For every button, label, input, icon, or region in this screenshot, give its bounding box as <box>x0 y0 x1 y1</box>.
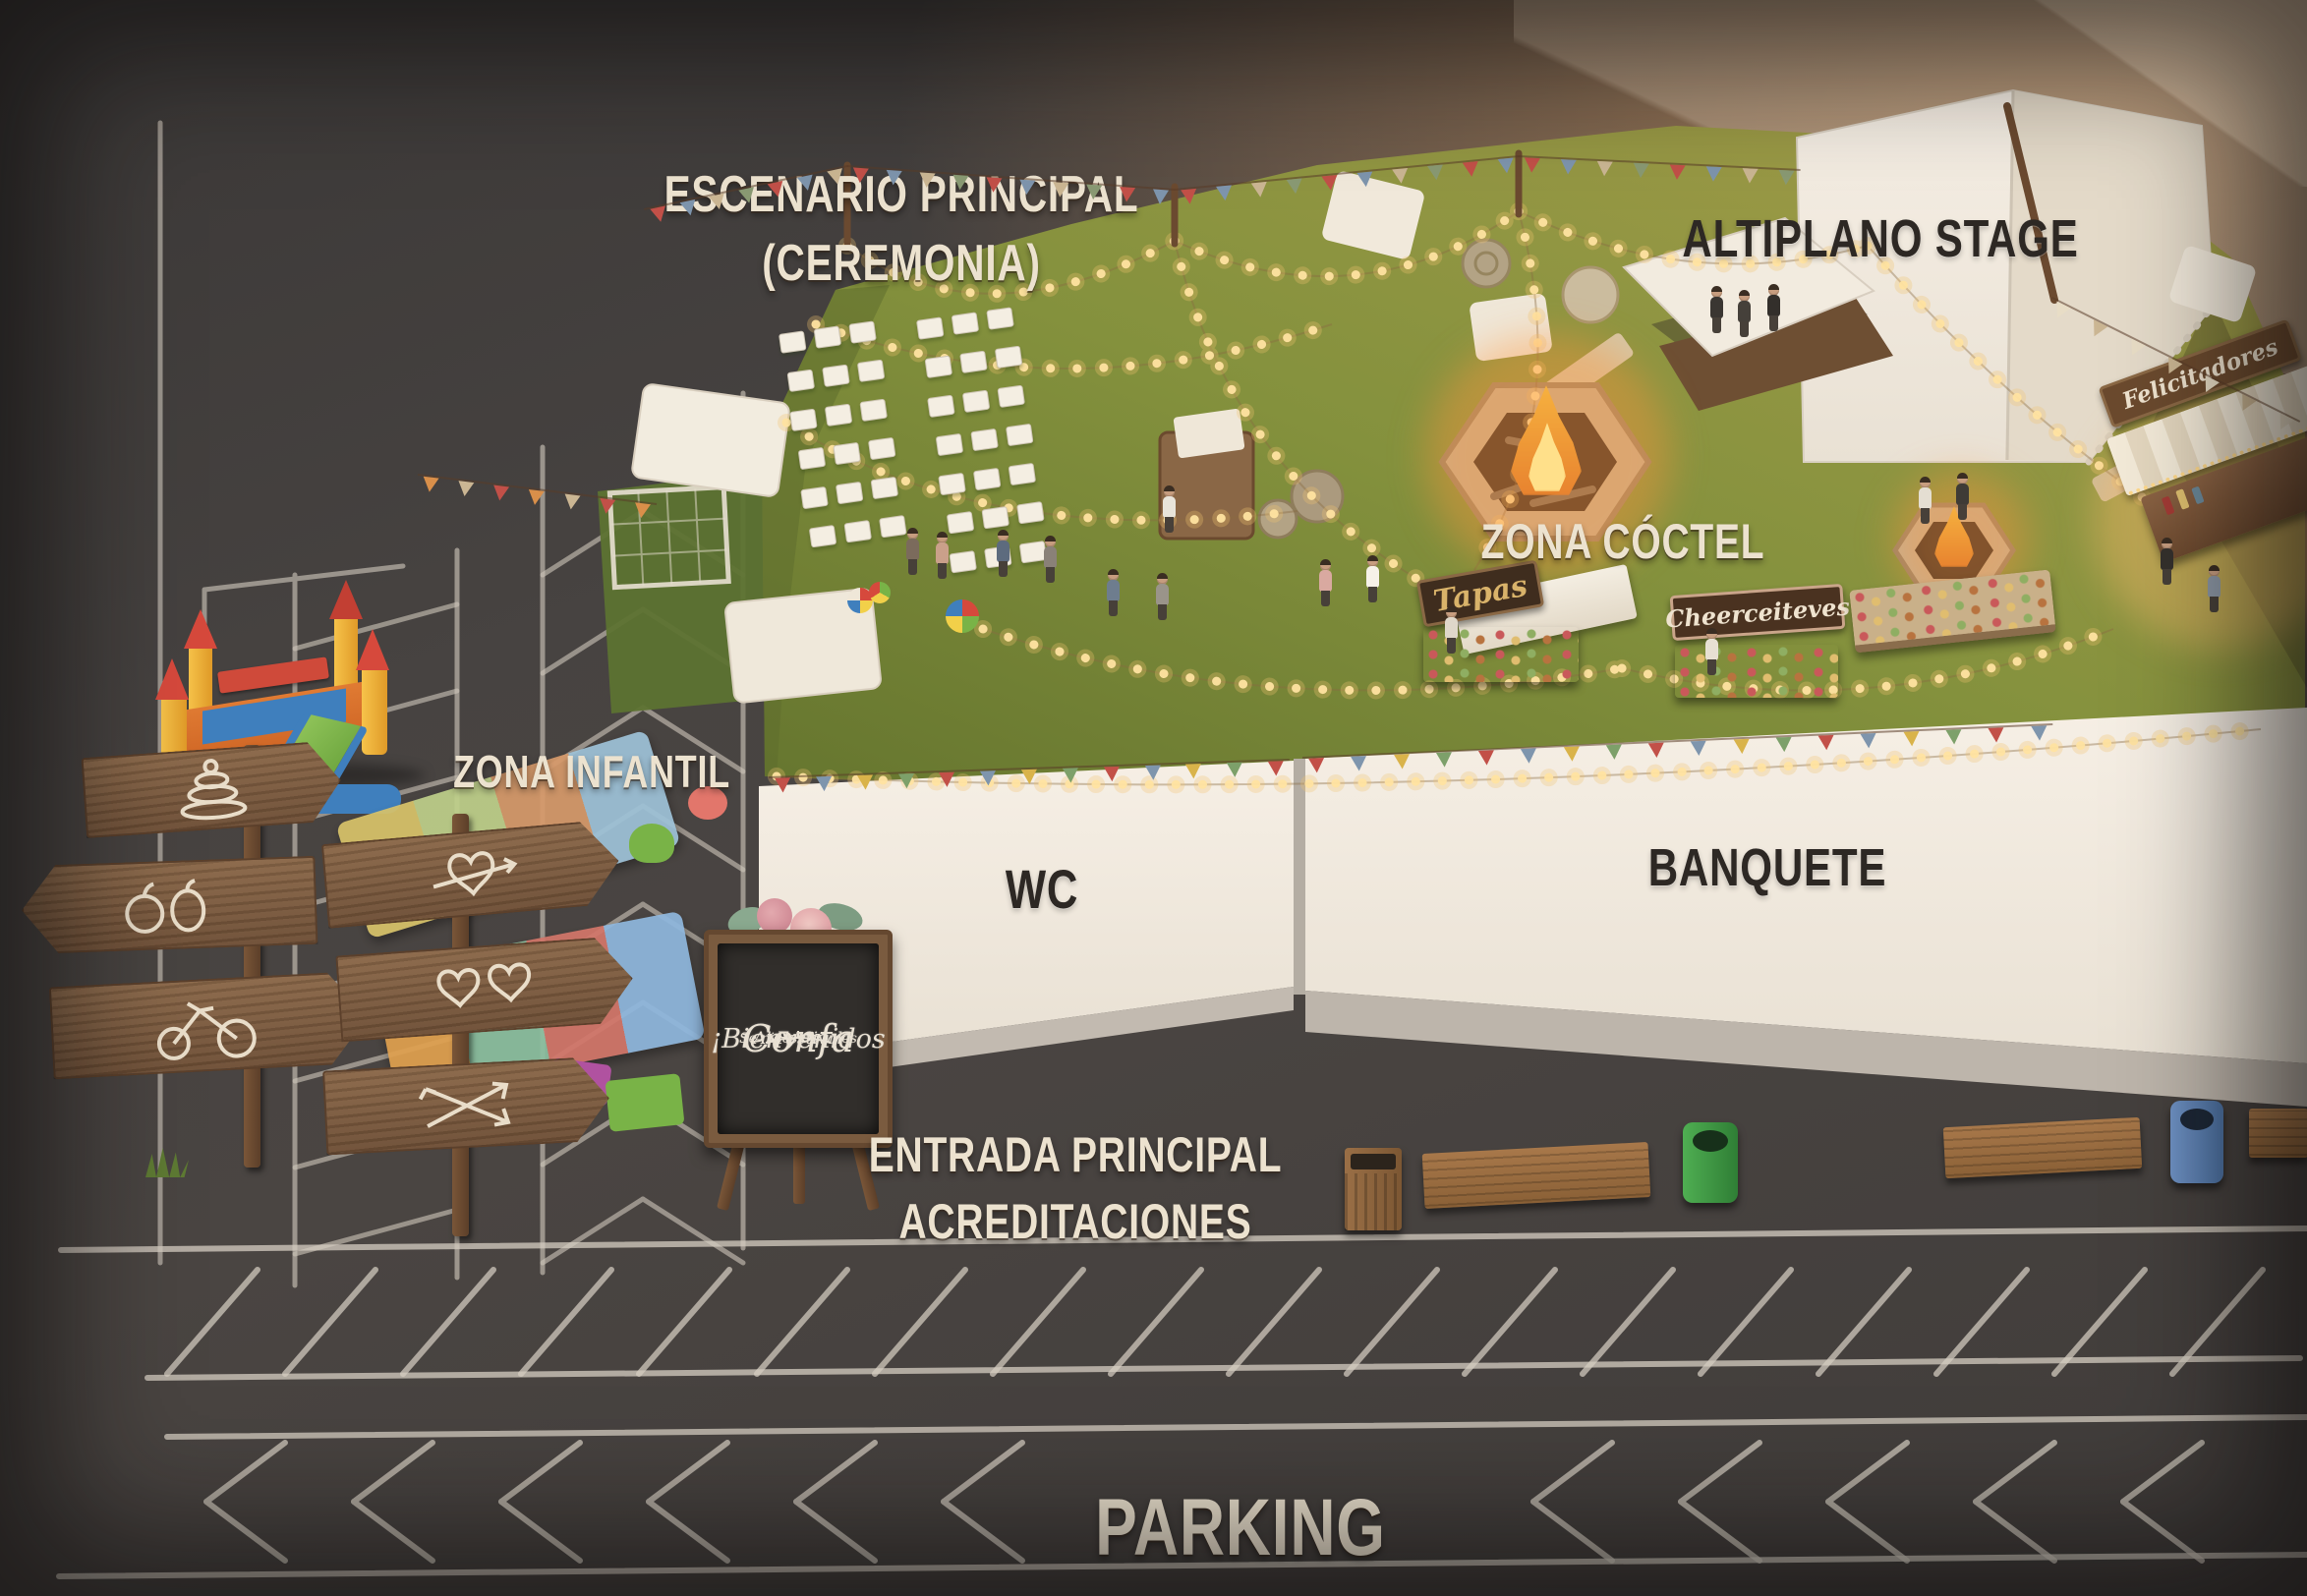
person-body <box>1156 584 1169 605</box>
person-body <box>1107 580 1120 601</box>
bunting-flag <box>1436 752 1453 768</box>
bunting-flag <box>633 502 651 519</box>
bunting-flag <box>1356 171 1373 187</box>
bunting-flag <box>1227 763 1242 778</box>
bunting-flag <box>1497 158 1514 174</box>
ceremony-chair <box>789 409 818 431</box>
bunting-flag <box>457 481 475 497</box>
label-main-stage-line2: (CEREMONIA) <box>762 234 1040 293</box>
label-entrance-line2: ACREDITACIONES <box>898 1193 1251 1250</box>
bunting-flag <box>1596 161 1613 177</box>
bunting-flag <box>980 770 996 786</box>
bunting-flag <box>816 776 832 792</box>
person <box>1163 486 1176 534</box>
person-body <box>997 541 1009 562</box>
ceremony-chair <box>848 320 877 343</box>
bunting-flag <box>1152 189 1169 204</box>
ceremony-chair <box>962 390 991 413</box>
ceremony-chair <box>809 525 837 547</box>
sign-crossed-arrows <box>322 1055 611 1155</box>
person-body <box>1366 566 1379 588</box>
bunting-flag <box>952 175 968 191</box>
person <box>997 531 1009 578</box>
ceremony-chair <box>1019 541 1048 563</box>
person-hair <box>1108 569 1119 575</box>
bunting-flag <box>939 772 954 788</box>
bunting-flag <box>852 167 869 183</box>
person-hair <box>907 528 918 534</box>
ceremony-chair <box>1006 424 1034 446</box>
bunting-flag <box>1903 731 1920 747</box>
person-hair <box>1157 573 1168 579</box>
person <box>1156 574 1169 621</box>
person-hair <box>2209 565 2220 571</box>
bunting-flag <box>1818 735 1835 751</box>
person-hair <box>998 530 1009 536</box>
ceremony-chair <box>779 330 807 353</box>
ceremony-chair <box>986 307 1014 329</box>
bunting-flag <box>1351 756 1367 771</box>
ceremony-chair <box>936 433 964 456</box>
bunting-flag <box>898 773 914 789</box>
person-body <box>2161 548 2173 570</box>
bunting-flag <box>1742 168 1759 184</box>
bunting-flag <box>709 194 727 211</box>
person-legs <box>1707 659 1716 675</box>
bunting-flag <box>1633 163 1649 179</box>
bunting-flag <box>2031 725 2047 741</box>
bunting-flag <box>768 181 786 199</box>
person-hair <box>1446 606 1457 612</box>
bunting-flag <box>1521 748 1537 764</box>
welcome-chalkboard: ¡Bienvenidos Al Festival Confa Se nices … <box>700 914 896 1209</box>
ceremony-chair <box>952 312 980 334</box>
person-legs <box>1368 587 1377 602</box>
person-body <box>1445 617 1458 639</box>
bench <box>1943 1117 2142 1178</box>
person-legs <box>1712 317 1721 333</box>
bunting-flag <box>1268 761 1284 776</box>
bunting-flag <box>1119 187 1135 202</box>
dessert-sign-text: Cheerceiteves <box>1664 592 1850 633</box>
festival-venue-map: Tapas Cheerceiteves Felicitadores ¡Bienv… <box>0 0 2307 1596</box>
bunting-flag <box>1144 765 1160 780</box>
ceremony-chair <box>879 515 907 538</box>
person-body <box>1319 570 1332 592</box>
bunting-flag <box>1085 185 1102 200</box>
bunting-flag <box>679 199 698 217</box>
bunting-flag <box>1392 168 1409 184</box>
foam-block <box>605 1073 684 1132</box>
person-legs <box>908 559 917 575</box>
person-hair <box>1739 290 1750 296</box>
person-hair <box>1045 536 1056 541</box>
bunting-flag <box>1308 758 1325 773</box>
person-legs <box>999 561 1008 577</box>
person <box>1710 287 1723 334</box>
green-trash-bin <box>1683 1122 1738 1203</box>
ceremony-chair <box>800 486 829 509</box>
person <box>2161 539 2173 586</box>
ceremony-chair <box>859 399 888 422</box>
bunting-flag <box>1216 185 1233 200</box>
ceremony-chair <box>787 370 816 392</box>
person-legs <box>938 563 947 579</box>
person <box>1319 560 1332 607</box>
bunting-flag <box>1052 182 1068 198</box>
label-wc: WC <box>1006 857 1078 921</box>
bunting-flag <box>650 205 668 223</box>
ceremony-chair <box>938 473 966 495</box>
bunting-flag <box>1478 750 1495 766</box>
person-hair <box>1164 485 1175 491</box>
bunting-flag <box>527 489 545 506</box>
ceremony-chair <box>822 365 850 387</box>
ceremony-chair <box>798 447 827 470</box>
bunting-flag <box>1104 767 1120 782</box>
person-legs <box>2163 569 2171 585</box>
person <box>936 533 949 580</box>
label-entrance-line1: ENTRADA PRINCIPAL <box>869 1126 1283 1183</box>
ceremony-chair <box>995 346 1023 369</box>
person-body <box>1044 546 1057 568</box>
person <box>1107 570 1120 617</box>
person-legs <box>1740 321 1749 337</box>
person <box>1705 629 1718 676</box>
bunting-flag <box>562 493 580 510</box>
label-kids-zone: ZONA INFANTIL <box>453 745 730 798</box>
person <box>1956 474 1969 521</box>
person-hair <box>1320 559 1331 565</box>
ceremony-chair <box>973 468 1002 490</box>
bunting-flag <box>857 774 873 790</box>
bunting-flag <box>1394 754 1411 769</box>
bunting-flag <box>1563 746 1580 762</box>
person-hair <box>1957 473 1968 479</box>
bunting-flag <box>1669 165 1686 181</box>
person-legs <box>1109 600 1118 616</box>
bunting-flag <box>1018 180 1035 196</box>
bunting-flag <box>422 477 439 493</box>
person <box>1767 285 1780 332</box>
bunting-flag <box>492 485 510 502</box>
person-body <box>1767 295 1780 316</box>
beach-ball <box>946 599 979 633</box>
bunting-flag <box>1989 727 2005 743</box>
person-legs <box>1158 604 1167 620</box>
bunting-flag <box>1063 768 1079 783</box>
person-body <box>1956 484 1969 505</box>
bunting-flag <box>797 175 816 193</box>
ceremony-chair <box>836 482 864 504</box>
ceremony-chair <box>997 385 1025 408</box>
bunting-flag <box>1861 733 1877 749</box>
person <box>1919 478 1932 525</box>
label-parking: PARKING <box>1095 1482 1386 1574</box>
bunting-flag <box>1691 741 1707 757</box>
person <box>1738 291 1751 338</box>
bunting-flag <box>1524 157 1540 173</box>
ceremony-chair <box>970 428 999 451</box>
person <box>1044 537 1057 584</box>
ceremony-chair <box>868 437 896 460</box>
bunting-flag <box>1287 178 1303 194</box>
person-body <box>1738 301 1751 322</box>
bunting-flag <box>1705 166 1722 182</box>
bunting-flag <box>1427 165 1444 181</box>
person-legs <box>1958 504 1967 520</box>
person-body <box>2208 576 2220 598</box>
ceremony-chair <box>814 325 842 348</box>
person-hair <box>937 532 948 538</box>
toy-balls <box>847 582 887 617</box>
person-legs <box>1165 517 1174 533</box>
label-banquet: BANQUETE <box>1648 837 1887 898</box>
person-legs <box>2210 597 2219 612</box>
bunting-flag <box>1945 729 1962 745</box>
welcome-line4: Se nices do tmes <box>739 1031 857 1047</box>
dessert-counter <box>1675 645 1838 698</box>
ceremony-chair <box>981 506 1009 529</box>
bunting-flag <box>775 777 790 793</box>
ceremony-chair <box>857 360 886 382</box>
person <box>906 529 919 576</box>
person-hair <box>1768 284 1779 290</box>
bunting-flag <box>886 170 902 186</box>
bunting-flag <box>1021 769 1037 785</box>
bunting-flag <box>985 177 1002 193</box>
bunting-flag <box>1462 161 1478 177</box>
ceremony-chair <box>1016 501 1045 524</box>
sign-tricycle <box>49 971 370 1080</box>
ceremony-chair <box>916 316 945 339</box>
person-hair <box>2162 538 2172 543</box>
label-cocktail-zone: ZONA CÓCTEL <box>1481 513 1765 570</box>
bench <box>2249 1109 2307 1158</box>
person-hair <box>1367 555 1378 561</box>
ceremony-chair <box>949 550 977 573</box>
person-hair <box>1706 628 1717 634</box>
foam-block <box>629 824 674 863</box>
bunting-flag <box>1776 737 1793 753</box>
sign-fruits <box>21 856 318 954</box>
bunting-flag <box>1560 159 1577 175</box>
bunting-flag <box>598 498 615 515</box>
bunting-flag <box>1648 743 1665 759</box>
bunting-flag <box>1321 175 1338 191</box>
person <box>2208 566 2220 613</box>
ceremony-chair <box>959 351 988 373</box>
ceremony-chair <box>925 356 953 378</box>
marquee-seam <box>1294 759 1305 995</box>
person <box>1445 607 1458 655</box>
person-body <box>1705 639 1718 660</box>
person-legs <box>1046 567 1055 583</box>
person-body <box>906 539 919 560</box>
blue-trash-bin <box>2170 1101 2223 1183</box>
person-hair <box>1920 477 1931 483</box>
ceremony-chair <box>871 477 899 499</box>
bunting-flag <box>1733 739 1750 755</box>
person-body <box>1710 297 1723 318</box>
ceremony-chair <box>825 404 853 427</box>
ceremony-chair <box>947 511 975 534</box>
person-legs <box>1921 508 1930 524</box>
bunting-flag <box>919 172 936 188</box>
ceremony-chair <box>833 442 861 465</box>
person-body <box>1163 496 1176 518</box>
person-legs <box>1321 591 1330 606</box>
bunting-flag <box>1251 182 1268 198</box>
ceremony-chair <box>843 520 872 542</box>
label-altiplano-stage: ALTIPLANO STAGE <box>1682 208 2078 269</box>
ceremony-chair <box>927 395 955 418</box>
bunting-flag <box>1181 189 1197 204</box>
bunting-flag <box>1606 745 1623 761</box>
ceremony-chair <box>1009 463 1037 485</box>
person-legs <box>1447 638 1456 654</box>
person-body <box>936 542 949 564</box>
person-legs <box>1769 315 1778 331</box>
bunting-flag <box>1185 764 1201 779</box>
bunting-flag <box>738 187 757 204</box>
bunting-flag <box>827 168 845 186</box>
person-hair <box>1711 286 1722 292</box>
bunting-flag <box>1778 170 1795 186</box>
wooden-trash-bin <box>1345 1148 1402 1230</box>
person <box>1366 556 1379 603</box>
person-body <box>1919 487 1932 509</box>
